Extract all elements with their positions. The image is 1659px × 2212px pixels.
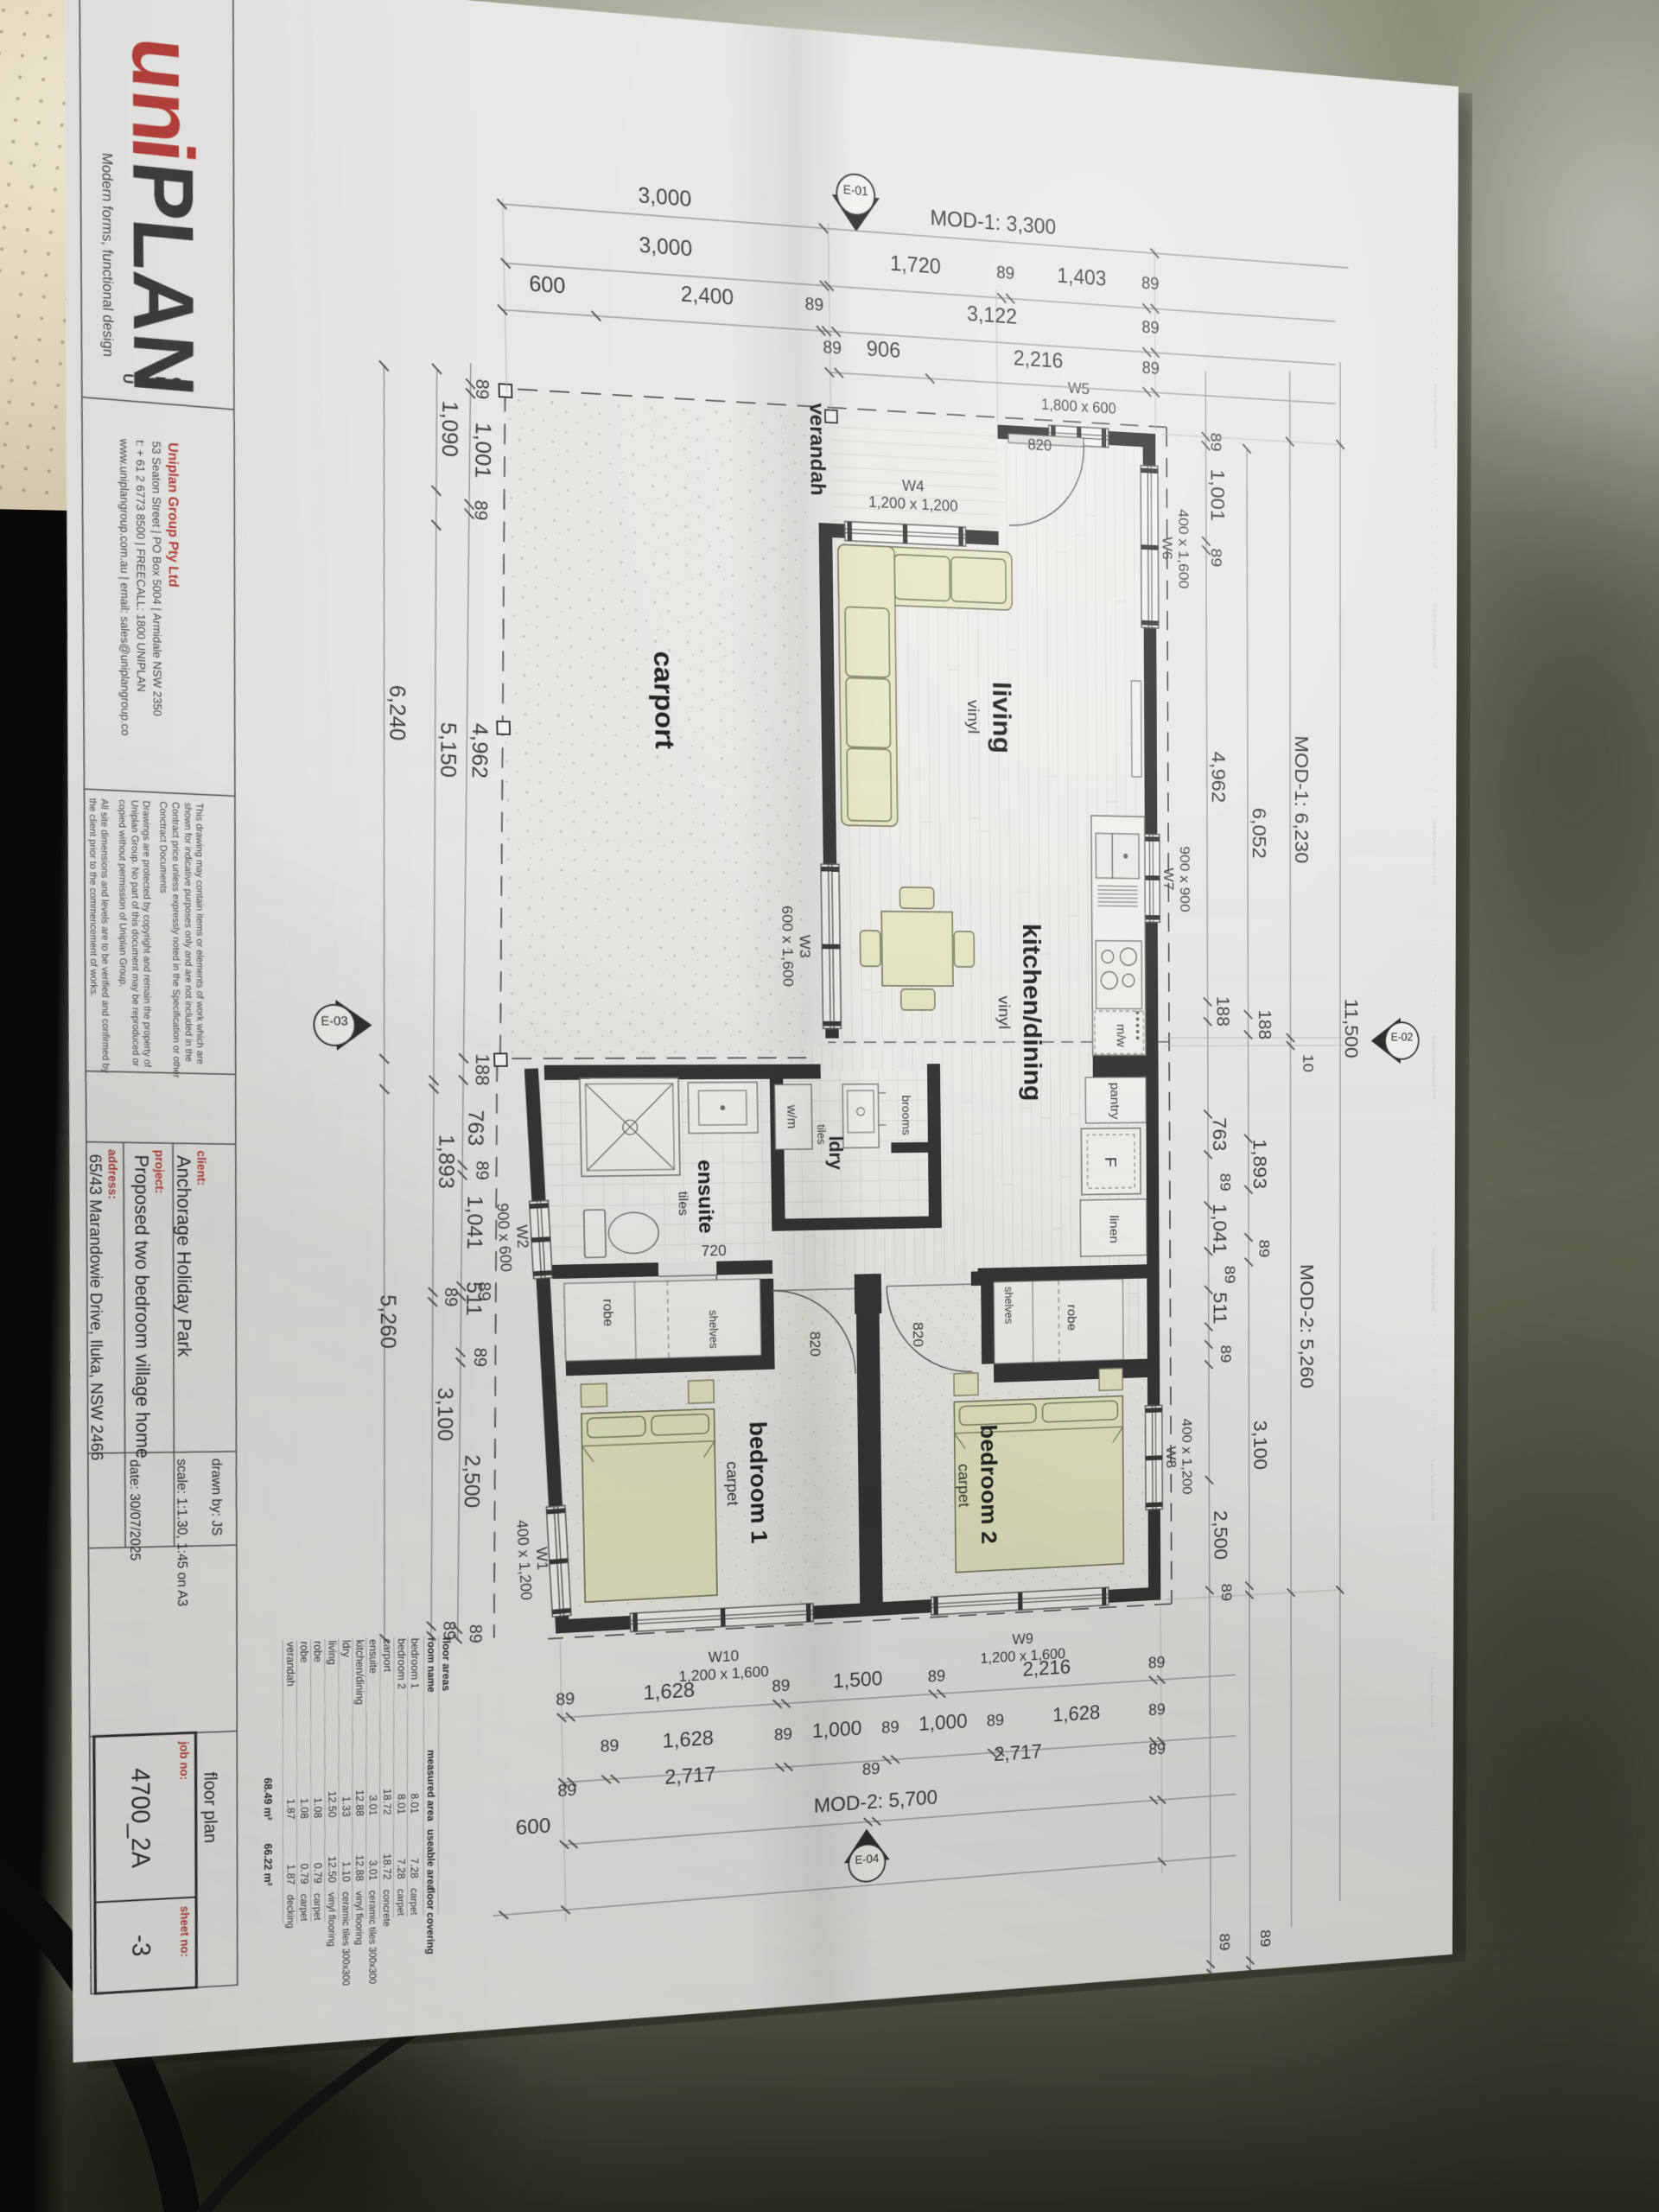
svg-text:pantry: pantry xyxy=(1108,1083,1122,1120)
svg-text:7.28: 7.28 xyxy=(395,1859,407,1880)
svg-text:89: 89 xyxy=(1217,1173,1234,1192)
svg-text:robe: robe xyxy=(312,1641,325,1662)
svg-text:1,000: 1,000 xyxy=(918,1710,968,1736)
svg-text:89: 89 xyxy=(774,1725,792,1745)
svg-text:1,041: 1,041 xyxy=(1209,1204,1230,1255)
svg-text:shelves: shelves xyxy=(707,1310,720,1349)
svg-text:89: 89 xyxy=(823,338,842,359)
svg-text:E-01: E-01 xyxy=(843,181,868,198)
svg-text:t: + 61 2 6773 8500 | FREECALL: t: + 61 2 6773 8500 | FREECALL: 1800 UNI… xyxy=(133,440,148,693)
svg-text:uniplan group drawing no 4700: uniplan group drawing no 4700 xyxy=(1431,1036,1435,1099)
svg-text:89: 89 xyxy=(472,1160,492,1180)
svg-text:1.33: 1.33 xyxy=(340,1796,353,1818)
svg-text:uniplan group drawing no 4700: uniplan group drawing no 4700 xyxy=(1432,821,1436,884)
svg-text:1,041: 1,041 xyxy=(462,1196,486,1250)
svg-text:89: 89 xyxy=(470,1348,490,1367)
svg-text:820: 820 xyxy=(807,1331,824,1357)
svg-text:uniplan group drawing no 4700: uniplan group drawing no 4700 xyxy=(1430,1249,1434,1311)
svg-text:2,400: 2,400 xyxy=(681,282,734,310)
svg-text:12.50: 12.50 xyxy=(326,1856,339,1884)
svg-text:18.72: 18.72 xyxy=(381,1789,393,1815)
svg-text:89: 89 xyxy=(557,1781,576,1801)
svg-text:vinyl flooring: vinyl flooring xyxy=(326,1892,336,1947)
svg-text:10: 10 xyxy=(1300,1054,1316,1072)
svg-text:600: 600 xyxy=(529,271,566,299)
svg-text:ceramic tiles 300x300: ceramic tiles 300x300 xyxy=(340,1891,351,1986)
svg-text:0.79: 0.79 xyxy=(298,1863,311,1885)
svg-text:robe: robe xyxy=(298,1641,311,1662)
svg-text:uniplan group drawing no 4700: uniplan group drawing no 4700 xyxy=(1432,604,1436,668)
svg-text:8.01: 8.01 xyxy=(409,1793,421,1815)
svg-text:useable area: useable area xyxy=(425,1829,436,1891)
svg-text:89: 89 xyxy=(1217,1583,1234,1602)
svg-text:carpet: carpet xyxy=(395,1889,405,1917)
svg-text:Uniplan Group. No part of this: Uniplan Group. No part of this document … xyxy=(129,800,140,1067)
svg-text:uniplan group drawing no 4700: uniplan group drawing no 4700 xyxy=(1430,1459,1434,1520)
svg-text:floor plan: floor plan xyxy=(200,1771,220,1844)
svg-text:W7: W7 xyxy=(1161,868,1177,890)
svg-text:2,216: 2,216 xyxy=(1014,346,1064,373)
svg-text:carport: carport xyxy=(381,1638,393,1672)
svg-text:Conctract Documents: Conctract Documents xyxy=(157,801,168,893)
svg-text:3.01: 3.01 xyxy=(367,1795,379,1816)
svg-text:600 x 1,600: 600 x 1,600 xyxy=(779,906,797,987)
svg-text:89: 89 xyxy=(881,1718,899,1737)
svg-text:89: 89 xyxy=(1217,1344,1235,1363)
svg-text:E-02: E-02 xyxy=(1391,1030,1414,1043)
svg-text:bedroom 2: bedroom 2 xyxy=(976,1424,1001,1544)
svg-text:188: 188 xyxy=(471,1053,493,1086)
svg-text:Contract price unless expressl: Contract price unless expressly noted in… xyxy=(169,802,181,1078)
svg-text:906: 906 xyxy=(867,337,901,363)
svg-text:1.10: 1.10 xyxy=(340,1861,353,1883)
svg-text:address:: address: xyxy=(105,1149,120,1199)
svg-text:shown for indicative purposes: shown for indicative purposes only and a… xyxy=(182,803,194,1063)
svg-text:Anchorage Holiday Park: Anchorage Holiday Park xyxy=(173,1155,195,1357)
svg-text:W9: W9 xyxy=(1012,1630,1033,1647)
svg-text:ensuite: ensuite xyxy=(693,1160,717,1234)
svg-text:m/w: m/w xyxy=(1114,1024,1128,1047)
svg-text:This drawing may contain items: This drawing may contain items or elemen… xyxy=(194,803,205,1065)
svg-text:89: 89 xyxy=(471,499,491,521)
svg-text:1,090: 1,090 xyxy=(437,400,462,458)
svg-text:kitchen/dining: kitchen/dining xyxy=(353,1639,366,1705)
svg-text:uniplan group drawing no 4700: uniplan group drawing no 4700 xyxy=(1433,384,1437,448)
svg-text:drawn by: JS: drawn by: JS xyxy=(208,1459,224,1536)
svg-text:-3: -3 xyxy=(127,1934,156,1957)
svg-text:0.79: 0.79 xyxy=(312,1863,325,1885)
svg-text:7.28: 7.28 xyxy=(409,1858,421,1879)
svg-text:1.08: 1.08 xyxy=(312,1797,325,1819)
svg-text:G: G xyxy=(168,377,184,389)
svg-text:1,001: 1,001 xyxy=(470,422,495,480)
svg-text:820: 820 xyxy=(910,1322,926,1348)
svg-text:2,717: 2,717 xyxy=(994,1740,1042,1765)
svg-text:2,216: 2,216 xyxy=(1022,1656,1071,1681)
svg-text:3,000: 3,000 xyxy=(638,183,691,212)
svg-text:12.50: 12.50 xyxy=(326,1790,339,1818)
svg-text:sheet no:: sheet no: xyxy=(178,1905,192,1957)
svg-text:8.01: 8.01 xyxy=(395,1794,407,1815)
svg-text:1,720: 1,720 xyxy=(890,251,941,279)
svg-text:W6: W6 xyxy=(1160,537,1175,560)
svg-text:89: 89 xyxy=(1148,1654,1166,1673)
svg-text:511: 511 xyxy=(461,1281,486,1316)
svg-text:robe: robe xyxy=(1065,1304,1078,1331)
svg-text:820: 820 xyxy=(1027,435,1052,454)
svg-text:763: 763 xyxy=(1209,1117,1230,1151)
svg-text:E-04: E-04 xyxy=(855,1852,879,1866)
svg-text:4700_2A: 4700_2A xyxy=(126,1768,156,1869)
svg-text:600: 600 xyxy=(515,1815,550,1840)
svg-text:89: 89 xyxy=(1255,1239,1272,1257)
svg-text:1.08: 1.08 xyxy=(298,1798,311,1820)
svg-text:720: 720 xyxy=(701,1242,726,1260)
svg-text:1,000: 1,000 xyxy=(812,1717,862,1743)
svg-text:brooms: brooms xyxy=(899,1095,913,1135)
svg-text:89: 89 xyxy=(556,1689,575,1709)
svg-text:3.01: 3.01 xyxy=(367,1859,379,1881)
svg-text:89: 89 xyxy=(601,1736,620,1756)
svg-text:robe: robe xyxy=(600,1299,615,1327)
svg-text:89: 89 xyxy=(1141,273,1159,294)
svg-text:1,893: 1,893 xyxy=(434,1135,458,1189)
svg-text:vinyl: vinyl xyxy=(995,995,1013,1029)
svg-text:1,628: 1,628 xyxy=(1052,1701,1100,1726)
svg-text:65/43 Marandowie Drive, Iluka,: 65/43 Marandowie Drive, Iluka, NSW 2466 xyxy=(86,1154,107,1461)
svg-text:shelves: shelves xyxy=(1002,1287,1014,1325)
svg-text:tiles: tiles xyxy=(815,1124,828,1145)
svg-text:18.72: 18.72 xyxy=(381,1853,393,1880)
svg-text:Modern forms, functional desig: Modern forms, functional design xyxy=(99,152,116,358)
svg-text:89: 89 xyxy=(441,1287,461,1306)
svg-text:89: 89 xyxy=(1141,317,1159,338)
svg-text:job no:: job no: xyxy=(177,1740,191,1780)
svg-text:measured area: measured area xyxy=(425,1750,436,1822)
svg-text:vinyl flooring: vinyl flooring xyxy=(353,1891,364,1945)
svg-text:3,100: 3,100 xyxy=(1249,1420,1270,1470)
svg-text:E-03: E-03 xyxy=(321,1014,348,1028)
svg-text:1,001: 1,001 xyxy=(1206,468,1228,522)
svg-text:89: 89 xyxy=(472,378,492,400)
svg-text:bedroom 1: bedroom 1 xyxy=(409,1638,421,1689)
svg-text:W4: W4 xyxy=(902,476,925,495)
svg-text:kitchen/dining: kitchen/dining xyxy=(1017,924,1046,1102)
svg-text:room name: room name xyxy=(425,1637,436,1693)
svg-text:12.88: 12.88 xyxy=(353,1854,365,1881)
svg-text:carpet: carpet xyxy=(408,1888,418,1916)
svg-text:400 x 1,600: 400 x 1,600 xyxy=(1176,509,1192,589)
svg-text:linen: linen xyxy=(1107,1215,1121,1243)
svg-text:188: 188 xyxy=(1213,996,1232,1027)
svg-text:Uniplan Group Pty Ltd: Uniplan Group Pty Ltd xyxy=(165,442,181,588)
svg-text:11,500: 11,500 xyxy=(1340,999,1361,1058)
svg-text:Proposed two bedroom village h: Proposed two bedroom village home xyxy=(130,1154,154,1459)
svg-text:1,893: 1,893 xyxy=(1249,1139,1269,1189)
svg-text:PLAN: PLAN xyxy=(114,157,211,399)
svg-text:3,100: 3,100 xyxy=(433,1388,457,1441)
svg-text:W10: W10 xyxy=(709,1647,740,1666)
svg-text:w/m: w/m xyxy=(784,1104,798,1129)
svg-text:12.88: 12.88 xyxy=(353,1789,365,1817)
svg-text:floor areas: floor areas xyxy=(440,1637,452,1691)
svg-text:89: 89 xyxy=(987,1711,1004,1730)
svg-text:89: 89 xyxy=(1207,548,1224,568)
svg-text:763: 763 xyxy=(463,1109,487,1146)
svg-text:6,052: 6,052 xyxy=(1248,807,1268,859)
svg-text:4,962: 4,962 xyxy=(1207,751,1228,803)
svg-text:ldry: ldry xyxy=(340,1640,353,1658)
svg-text:1.87: 1.87 xyxy=(284,1798,297,1820)
svg-text:carpet: carpet xyxy=(723,1461,741,1507)
svg-text:89: 89 xyxy=(1207,432,1224,452)
svg-text:W3: W3 xyxy=(797,935,814,958)
svg-text:89: 89 xyxy=(1221,1266,1238,1284)
svg-text:uniplan group drawing no 4700: uniplan group drawing no 4700 xyxy=(1429,1667,1433,1728)
svg-text:W1: W1 xyxy=(533,1547,552,1571)
svg-text:89: 89 xyxy=(1148,1740,1166,1759)
svg-text:89: 89 xyxy=(996,263,1014,283)
svg-text:68.49 m²: 68.49 m² xyxy=(262,1777,275,1821)
svg-text:bedroom 1: bedroom 1 xyxy=(745,1421,772,1544)
svg-text:client:: client: xyxy=(194,1150,208,1185)
svg-text:Drawings are protected by copy: Drawings are protected by copyright and … xyxy=(140,800,151,1067)
svg-text:89: 89 xyxy=(862,1759,880,1779)
svg-text:ensuite: ensuite xyxy=(367,1639,380,1674)
svg-text:5,260: 5,260 xyxy=(376,1294,400,1349)
svg-text:89: 89 xyxy=(1216,1933,1232,1952)
svg-text:2,500: 2,500 xyxy=(460,1454,484,1508)
svg-text:MOD-1: 6,230: MOD-1: 6,230 xyxy=(1291,735,1312,864)
svg-text:tiles: tiles xyxy=(675,1191,690,1216)
svg-text:53 Seaton Street | PO Box 5004: 53 Seaton Street | PO Box 5004 | Armidal… xyxy=(149,441,164,717)
svg-text:vinyl: vinyl xyxy=(963,700,982,734)
svg-text:carpet: carpet xyxy=(298,1894,308,1923)
svg-text:ceramic tiles 300x300: ceramic tiles 300x300 xyxy=(366,1890,377,1984)
svg-text:carport: carport xyxy=(648,651,681,750)
svg-text:carpet: carpet xyxy=(956,1464,973,1509)
svg-text:900 x 900: 900 x 900 xyxy=(1177,846,1192,912)
svg-text:1.87: 1.87 xyxy=(284,1864,297,1885)
svg-text:89: 89 xyxy=(1257,1929,1274,1948)
svg-text:89: 89 xyxy=(1142,359,1160,378)
svg-text:copied without permission of U: copied without permission of Uniplan Gro… xyxy=(117,799,128,987)
svg-text:1,628: 1,628 xyxy=(643,1679,695,1705)
svg-text:5,150: 5,150 xyxy=(435,721,460,778)
svg-text:2,500: 2,500 xyxy=(1210,1510,1230,1560)
svg-text:3,000: 3,000 xyxy=(639,233,692,262)
svg-text:R: R xyxy=(152,376,168,388)
svg-text:89: 89 xyxy=(466,1624,486,1643)
svg-text:decking: decking xyxy=(284,1894,296,1929)
svg-text:floor covering: floor covering xyxy=(424,1887,435,1955)
svg-text:date: 30/07/2025: date: 30/07/2025 xyxy=(126,1459,143,1560)
svg-text:living: living xyxy=(988,681,1018,753)
svg-text:89: 89 xyxy=(804,295,823,315)
svg-text:3,122: 3,122 xyxy=(967,302,1017,329)
svg-text:6,240: 6,240 xyxy=(385,684,409,741)
svg-text:verandah: verandah xyxy=(806,403,829,497)
svg-text:1,628: 1,628 xyxy=(662,1726,714,1752)
svg-text:2,717: 2,717 xyxy=(664,1763,716,1789)
svg-text:verandah: verandah xyxy=(284,1642,297,1687)
svg-text:O: O xyxy=(136,374,152,387)
svg-text:4,962: 4,962 xyxy=(467,722,492,779)
svg-text:W2: W2 xyxy=(513,1224,532,1249)
svg-text:project:: project: xyxy=(152,1150,166,1194)
svg-text:All site dimensions and levels: All site dimensions and levels are to be… xyxy=(99,798,111,1074)
svg-text:1,403: 1,403 xyxy=(1057,264,1106,291)
svg-text:scale: 1:1.30, 1:45 on A3: scale: 1:1.30, 1:45 on A3 xyxy=(174,1459,190,1606)
svg-text:carpet: carpet xyxy=(312,1893,322,1922)
svg-text:1,500: 1,500 xyxy=(833,1668,883,1694)
svg-text:F: F xyxy=(1101,1157,1119,1167)
svg-text:W8: W8 xyxy=(1163,1446,1179,1468)
svg-text:MOD-2: 5,260: MOD-2: 5,260 xyxy=(1296,1264,1317,1389)
svg-text:89: 89 xyxy=(928,1667,946,1686)
svg-text:400 x 1,200: 400 x 1,200 xyxy=(1179,1418,1195,1495)
svg-text:un: un xyxy=(113,33,210,149)
svg-text:www.uniplangroup.com.au | emai: www.uniplangroup.com.au | email: sales@u… xyxy=(118,437,132,736)
svg-text:bedroom 2: bedroom 2 xyxy=(396,1638,408,1689)
svg-text:188: 188 xyxy=(1255,1010,1274,1040)
svg-text:66.22 m²: 66.22 m² xyxy=(262,1843,275,1886)
svg-text:U: U xyxy=(119,372,136,384)
svg-text:511: 511 xyxy=(1209,1292,1230,1325)
svg-text:89: 89 xyxy=(1148,1700,1166,1719)
svg-text:the client prior to the commen: the client prior to the commencement of … xyxy=(86,798,98,996)
svg-text:living: living xyxy=(326,1640,339,1665)
svg-text:concrete: concrete xyxy=(381,1890,391,1928)
svg-text:89: 89 xyxy=(772,1676,790,1696)
